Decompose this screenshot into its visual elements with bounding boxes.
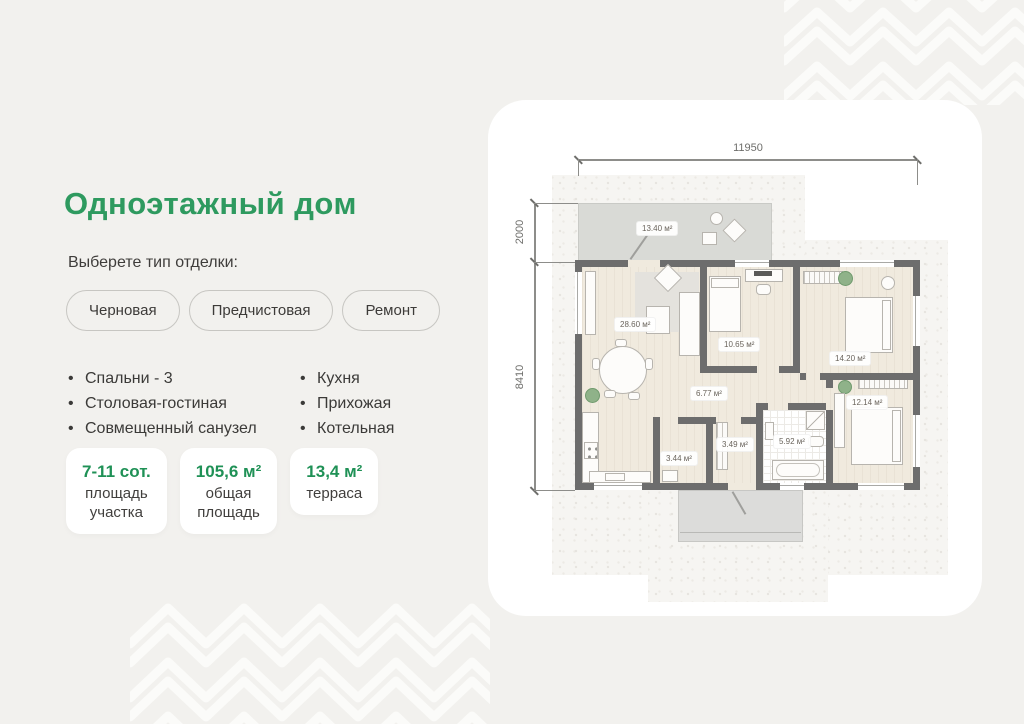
wall-segment: [826, 380, 833, 388]
room-label-bathroom: 5.92 м²: [773, 434, 811, 449]
window: [913, 296, 920, 346]
dining-chair: [628, 392, 640, 400]
wall-segment: [653, 417, 660, 483]
wall-segment: [700, 267, 707, 373]
stat-value: 7-11 сот.: [82, 461, 151, 483]
feature-list-col1: Спальни - 3 Столовая-гостиная Совмещенны…: [68, 366, 300, 441]
page-title: Одноэтажный дом: [64, 186, 357, 222]
dimension-width-label: 11950: [688, 142, 808, 154]
radiator: [585, 271, 596, 335]
floor-plan-card: 11950 2000 8410: [488, 100, 982, 616]
bed-pillow: [711, 278, 739, 288]
zigzag-pattern-top-right: [784, 0, 1024, 105]
stat-value: 105,6 м²: [196, 461, 262, 483]
window: [840, 260, 894, 267]
plant-icon: [585, 388, 600, 403]
wall-segment: [826, 410, 833, 483]
terrace-table: [702, 232, 717, 245]
wardrobe: [834, 393, 845, 448]
room-label-bedroom3: 12.14 м²: [846, 395, 888, 410]
room-label-bedroom2: 14.20 м²: [829, 351, 871, 366]
stat-card-total-area: 105,6 м² общая площадь: [180, 448, 278, 534]
dimension-extension: [534, 203, 578, 204]
dining-chair: [645, 358, 653, 370]
wall-segment: [793, 267, 800, 373]
plant-icon: [838, 380, 852, 394]
porch: [678, 490, 803, 542]
shower: [806, 411, 825, 430]
front-door-opening: [728, 483, 756, 490]
dimension-terrace-label: 2000: [514, 202, 526, 262]
window: [780, 483, 804, 490]
kitchen-sink: [605, 473, 625, 481]
sofa: [679, 292, 700, 356]
feature-item: Столовая-гостиная: [68, 391, 300, 416]
dimension-line: [534, 203, 536, 491]
wall-segment: [788, 403, 826, 410]
dimension-extension: [534, 262, 575, 263]
wardrobe: [858, 379, 908, 389]
bed-pillow: [882, 300, 891, 350]
stat-label: общая площадь: [196, 484, 262, 522]
bathtub-inner: [776, 463, 820, 477]
room-label-entry: 3.49 м²: [716, 437, 754, 452]
wall-segment: [741, 417, 756, 424]
room-label-boiler: 3.44 м²: [660, 451, 698, 466]
dining-table: [599, 346, 647, 394]
desk-chair: [756, 284, 771, 295]
feature-item: Прихожая: [300, 391, 394, 416]
boiler-unit: [662, 470, 678, 482]
room-label-hall: 6.77 м²: [690, 386, 728, 401]
stove: [584, 442, 598, 459]
floor-lamp: [881, 276, 895, 290]
terrace-pouf: [710, 212, 723, 225]
stat-label: площадь участка: [82, 484, 151, 522]
porch-step-line: [680, 532, 801, 533]
dining-chair: [604, 390, 616, 398]
room-label-living: 28.60 м²: [614, 317, 656, 332]
wall-segment: [820, 373, 913, 380]
feature-item: Спальни - 3: [68, 366, 300, 391]
dimension-extension: [578, 159, 579, 176]
feature-item: Кухня: [300, 366, 394, 391]
stat-value: 13,4 м²: [306, 461, 362, 483]
feature-list-col2: Кухня Прихожая Котельная: [300, 366, 394, 441]
window: [594, 483, 642, 490]
feature-item: Совмещенный санузел: [68, 416, 300, 441]
zigzag-pattern-bottom-left: [130, 598, 490, 724]
wall-segment: [756, 410, 763, 483]
wall-segment: [707, 366, 757, 373]
stat-card-terrace-area: 13,4 м² терраса: [290, 448, 378, 515]
wall-segment: [678, 417, 706, 424]
finish-option-remont[interactable]: Ремонт: [342, 290, 440, 331]
floor-plan: 11950 2000 8410: [488, 100, 982, 616]
stat-cards: 7-11 сот. площадь участка 105,6 м² общая…: [66, 448, 378, 534]
dimension-house-label: 8410: [514, 347, 526, 407]
room-label-bedroom1: 10.65 м²: [718, 337, 760, 352]
window: [858, 483, 904, 490]
page: Одноэтажный дом Выберете тип отделки: Че…: [0, 0, 1024, 724]
finish-type-options: Черновая Предчистовая Ремонт: [66, 290, 440, 331]
dimension-extension: [534, 490, 575, 491]
bed-pillow: [892, 410, 901, 462]
dining-chair: [592, 358, 600, 370]
stat-card-plot-area: 7-11 сот. площадь участка: [66, 448, 167, 534]
window: [913, 415, 920, 467]
stat-label: терраса: [306, 484, 362, 503]
finish-option-predchistovaya[interactable]: Предчистовая: [189, 290, 334, 331]
finish-type-label: Выберете тип отделки:: [68, 254, 238, 272]
wall-segment: [756, 403, 768, 410]
terrace-door-opening: [628, 260, 660, 267]
window: [735, 260, 769, 267]
window: [575, 272, 582, 334]
plant-icon: [838, 271, 853, 286]
wall-segment: [779, 366, 793, 373]
dimension-line: [578, 159, 918, 161]
monitor: [754, 271, 772, 276]
finish-option-chernovaya[interactable]: Черновая: [66, 290, 180, 331]
feature-list: Спальни - 3 Столовая-гостиная Совмещенны…: [68, 366, 394, 441]
dining-chair: [615, 339, 627, 347]
wall-segment: [800, 373, 806, 380]
dimension-extension: [917, 159, 918, 185]
wardrobe: [803, 271, 843, 284]
room-label-terrace: 13.40 м²: [636, 221, 678, 236]
feature-item: Котельная: [300, 416, 394, 441]
wall-segment: [706, 417, 713, 483]
